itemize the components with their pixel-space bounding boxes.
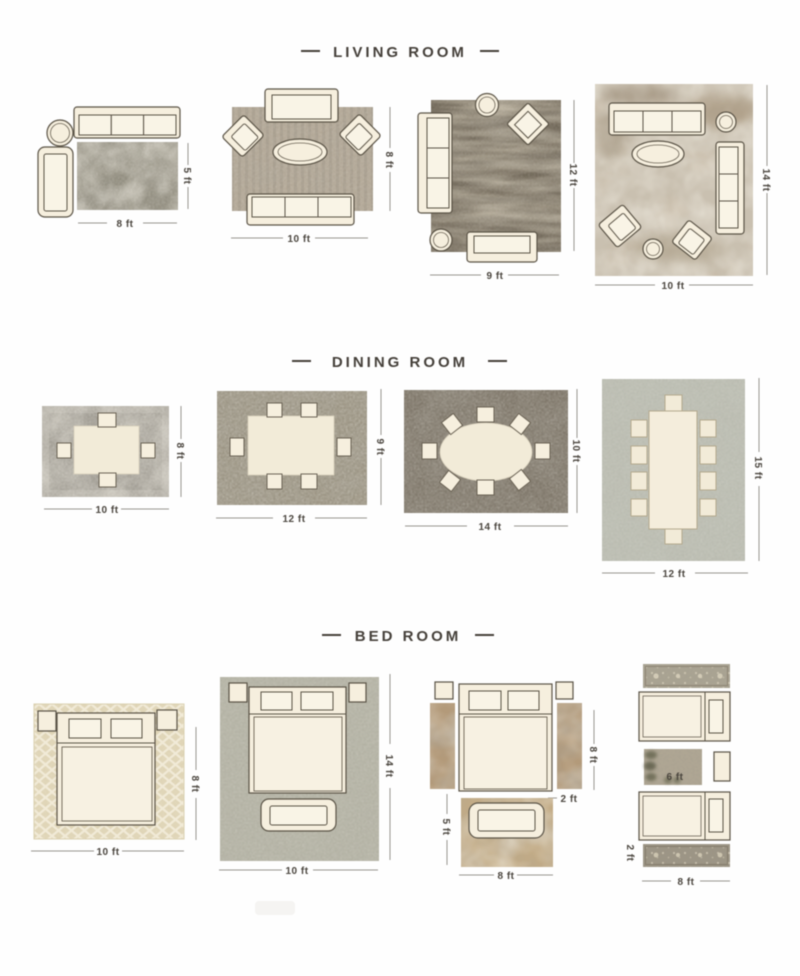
svg-text:5 ft: 5 ft: [181, 168, 192, 185]
svg-text:6 ft: 6 ft: [667, 772, 684, 783]
svg-text:9 ft: 9 ft: [487, 271, 504, 282]
svg-text:8 ft: 8 ft: [383, 152, 394, 169]
svg-text:12 ft: 12 ft: [282, 514, 305, 525]
svg-text:10 ft: 10 ft: [96, 847, 119, 858]
svg-text:15 ft: 15 ft: [752, 456, 763, 479]
svg-text:8 ft: 8 ft: [174, 443, 185, 460]
svg-text:LIVING ROOM: LIVING ROOM: [333, 44, 467, 61]
svg-text:10 ft: 10 ft: [95, 505, 118, 516]
svg-text:8 ft: 8 ft: [587, 747, 598, 764]
svg-text:10 ft: 10 ft: [287, 234, 310, 245]
svg-text:2 ft: 2 ft: [561, 794, 578, 805]
svg-text:BED ROOM: BED ROOM: [355, 628, 462, 645]
svg-text:5 ft: 5 ft: [440, 819, 451, 836]
svg-text:10 ft: 10 ft: [570, 439, 581, 462]
svg-text:8 ft: 8 ft: [498, 871, 515, 882]
svg-text:8 ft: 8 ft: [678, 877, 695, 888]
svg-text:12 ft: 12 ft: [567, 163, 578, 186]
svg-text:9 ft: 9 ft: [374, 439, 385, 456]
svg-text:10 ft: 10 ft: [285, 866, 308, 877]
svg-text:10 ft: 10 ft: [661, 281, 684, 292]
svg-text:2 ft: 2 ft: [624, 845, 635, 862]
svg-text:8 ft: 8 ft: [189, 776, 200, 793]
svg-text:14 ft: 14 ft: [478, 522, 501, 533]
svg-text:DINING ROOM: DINING ROOM: [332, 354, 468, 371]
svg-text:12 ft: 12 ft: [662, 569, 685, 580]
svg-text:14 ft: 14 ft: [760, 168, 771, 191]
svg-text:14 ft: 14 ft: [383, 754, 394, 777]
svg-text:8 ft: 8 ft: [117, 219, 134, 230]
